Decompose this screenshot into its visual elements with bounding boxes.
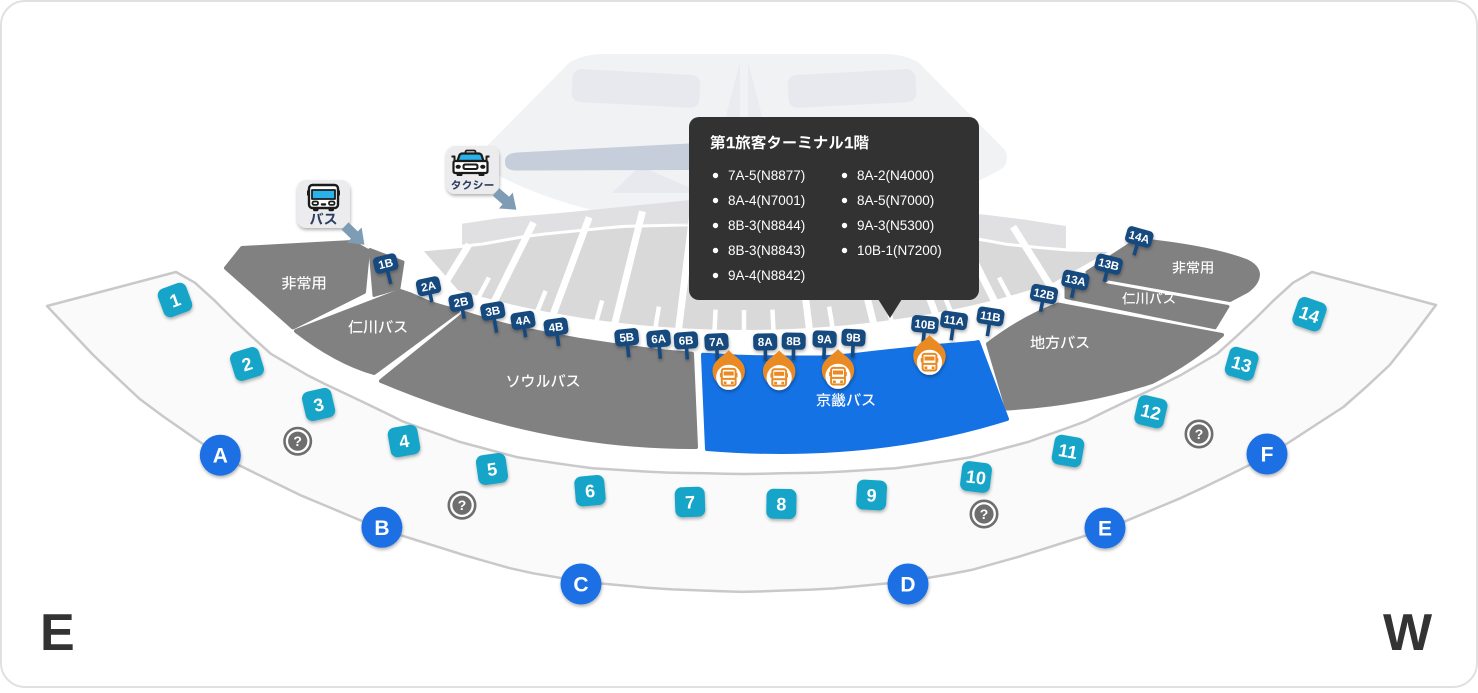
- svg-text:9: 9: [866, 485, 877, 505]
- svg-text:5B: 5B: [619, 332, 635, 345]
- svg-text:E: E: [1098, 518, 1112, 541]
- svg-text:?: ?: [980, 506, 989, 522]
- svg-text:?: ?: [458, 497, 467, 513]
- svg-text:10B-1(N7200): 10B-1(N7200): [857, 243, 942, 258]
- svg-text:8A: 8A: [758, 337, 773, 349]
- svg-text:8: 8: [776, 494, 786, 514]
- svg-text:10B: 10B: [914, 318, 936, 332]
- svg-text:8A-5(N7000): 8A-5(N7000): [857, 193, 934, 208]
- svg-text:9B: 9B: [846, 332, 861, 345]
- svg-text:8A-4(N7001): 8A-4(N7001): [728, 193, 805, 208]
- svg-text:?: ?: [1195, 426, 1204, 442]
- svg-text:7A: 7A: [709, 337, 724, 350]
- svg-text:11: 11: [1057, 440, 1079, 463]
- svg-text:7A-5(N8877): 7A-5(N8877): [728, 168, 805, 183]
- svg-text:7: 7: [685, 492, 696, 512]
- svg-text:6A: 6A: [651, 333, 667, 346]
- svg-text:E: E: [40, 604, 75, 662]
- svg-text:3B: 3B: [485, 305, 502, 319]
- svg-text:6B: 6B: [678, 335, 694, 348]
- svg-text:F: F: [1261, 444, 1274, 467]
- svg-text:?: ?: [293, 433, 302, 449]
- svg-text:10: 10: [965, 466, 987, 488]
- svg-text:9A-4(N8842): 9A-4(N8842): [728, 268, 805, 283]
- svg-text:8B: 8B: [786, 336, 801, 348]
- svg-text:6: 6: [584, 481, 596, 502]
- svg-text:8B-3(N8843): 8B-3(N8843): [728, 243, 805, 258]
- svg-text:8B-3(N8844): 8B-3(N8844): [728, 218, 805, 233]
- svg-text:W: W: [1383, 604, 1433, 662]
- svg-text:B: B: [374, 517, 389, 540]
- svg-text:9A: 9A: [817, 334, 832, 347]
- svg-text:8A-2(N4000): 8A-2(N4000): [857, 168, 934, 183]
- svg-text:C: C: [573, 574, 588, 597]
- svg-text:9A-3(N5300): 9A-3(N5300): [857, 218, 934, 233]
- svg-text:4A: 4A: [515, 314, 531, 328]
- svg-text:D: D: [900, 574, 915, 597]
- svg-text:4B: 4B: [548, 321, 564, 335]
- svg-text:A: A: [213, 445, 228, 468]
